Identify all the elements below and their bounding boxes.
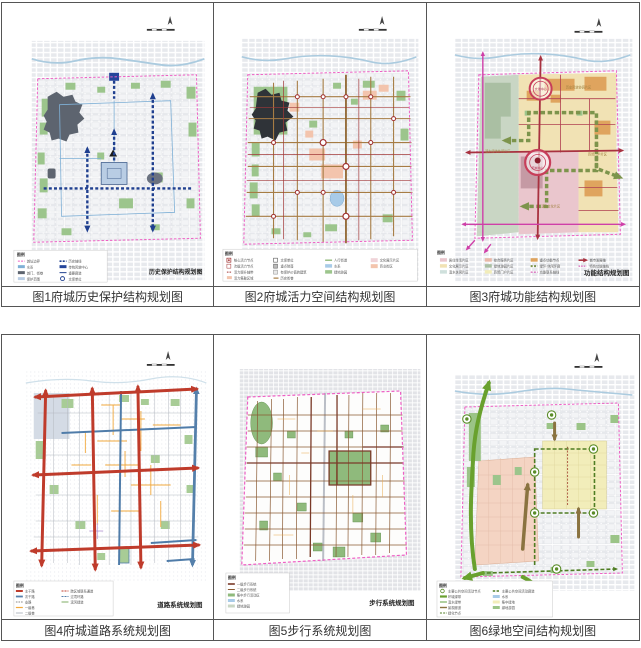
svg-text:主要公共空间活动廊道: 主要公共空间活动廊道 <box>501 588 534 593</box>
caption-figure-3: 图3府城功能结构规划图 <box>427 286 639 306</box>
svg-text:文化展示片区: 文化展示片区 <box>449 264 469 269</box>
svg-text:水系: 水系 <box>334 264 341 269</box>
panel-historic-protection: 图例 城址边界 水系 城门、街巷 保护范围 历史轴线 传统风貌中心 重要廊道 文… <box>2 3 214 306</box>
legend-title: 图例 <box>437 250 445 255</box>
legend-title: 图例 <box>225 251 233 256</box>
svg-text:二级步行系统: 二级步行系统 <box>237 587 257 592</box>
scale-bar <box>574 31 602 33</box>
svg-text:传统风貌中心: 传统风貌中心 <box>68 265 88 270</box>
svg-text:主干路: 主干路 <box>25 588 35 593</box>
legend: 图例 一级步行系统 二级步行系统 集中步行活动区 水系 绿地游园 <box>226 573 289 613</box>
protected-core-block <box>101 162 127 184</box>
svg-text:水系: 水系 <box>237 598 244 603</box>
svg-text:历史风貌协调片区: 历史风貌协调片区 <box>565 85 591 90</box>
map-pedestrian-figure: 图例 一级步行系统 二级步行系统 集中步行活动区 水系 绿地游园 步行系统规划图 <box>214 335 425 619</box>
panel-functional-structure: 文化中心 府城中心 历史风貌协调片区 商贸门户片区 滨水文化片区 滨水绿地休闲片… <box>427 3 639 306</box>
svg-text:集中步行活动区: 集中步行活动区 <box>237 592 261 597</box>
map-road-figure: 图例 主干路 次干路 支路 一级巷 二级巷 跨区域联系通道 过境环路 滨河绿道 … <box>2 335 213 619</box>
north-arrow-icon <box>166 351 171 360</box>
svg-text:特色功能轴线: 特色功能轴线 <box>589 264 609 269</box>
scale-bar <box>574 366 602 368</box>
scale-bar <box>147 29 175 31</box>
svg-text:文化展示片区: 文化展示片区 <box>380 258 400 263</box>
svg-text:环城绿带: 环城绿带 <box>448 594 462 599</box>
north-arrow-icon <box>380 16 385 25</box>
caption-figure-2: 图2府城活力空间结构规划图 <box>214 286 425 306</box>
map-function-figure: 文化中心 府城中心 历史风貌协调片区 商贸门户片区 滨水文化片区 滨水绿地休闲片… <box>427 3 639 286</box>
svg-text:商贸门户片区: 商贸门户片区 <box>493 270 513 275</box>
map-vitality-figure: 图例 核心活力节点 次级活力节点 活力提升轴带 活力集聚区域 文保单位 重点院落… <box>214 3 425 286</box>
legend-title: 图例 <box>228 575 236 580</box>
svg-text:文化中心: 文化中心 <box>534 86 546 91</box>
svg-text:滨水绿地休闲片区: 滨水绿地休闲片区 <box>485 149 511 154</box>
svg-text:活力提升轴带: 活力提升轴带 <box>234 270 254 275</box>
svg-text:水系: 水系 <box>27 265 34 270</box>
svg-text:一级步行系统: 一级步行系统 <box>237 581 257 586</box>
figure-grid-row-1: 图例 城址边界 水系 城门、街巷 保护范围 历史轴线 传统风貌中心 重要廊道 文… <box>1 2 640 307</box>
svg-text:一级巷: 一级巷 <box>25 605 35 610</box>
svg-text:商业街区: 商业街区 <box>380 264 394 269</box>
svg-text:历史街巷: 历史街巷 <box>281 276 295 281</box>
svg-text:有保护价值的建筑: 有保护价值的建筑 <box>281 270 308 275</box>
svg-text:水系: 水系 <box>501 594 508 599</box>
svg-text:二级巷: 二级巷 <box>25 610 35 615</box>
svg-text:历史轴线: 历史轴线 <box>68 259 82 264</box>
svg-text:滨水文化片区: 滨水文化片区 <box>541 203 561 208</box>
svg-text:城址边界: 城址边界 <box>27 259 41 264</box>
svg-text:活力集聚区域: 活力集聚区域 <box>234 276 254 281</box>
panel-green-space-structure: 图例 主要公共空间活动节点 环城绿带 滨水绿带 景观廊道 绿化节点 主要公共空间… <box>427 335 639 640</box>
svg-text:滨水绿带: 滨水绿带 <box>448 599 462 604</box>
map-title-label: 道路系统规划图 <box>157 600 203 609</box>
caption-figure-1: 图1府城历史保护结构规划图 <box>2 286 213 306</box>
svg-text:重点功能节点: 重点功能节点 <box>539 258 559 263</box>
svg-text:集中绿地: 集中绿地 <box>501 599 515 604</box>
svg-text:滨河绿道: 滨河绿道 <box>70 599 84 604</box>
legend: 图例 核心活力节点 次级活力节点 活力提升轴带 活力集聚区域 文保单位 重点院落… <box>223 249 417 281</box>
svg-text:城门、街巷: 城门、街巷 <box>27 271 44 276</box>
panel-road-system: 图例 主干路 次干路 支路 一级巷 二级巷 跨区域联系通道 过境环路 滨河绿道 … <box>2 335 214 640</box>
caption-figure-4: 图4府城道路系统规划图 <box>2 619 213 640</box>
svg-text:景观廊道: 景观廊道 <box>448 605 462 610</box>
svg-text:绿环·休闲环廊: 绿环·休闲环廊 <box>539 264 560 269</box>
svg-text:综合服务片区: 综合服务片区 <box>493 258 513 263</box>
svg-text:功能联系轴线: 功能联系轴线 <box>539 270 559 275</box>
svg-text:绿地游园: 绿地游园 <box>237 603 250 608</box>
svg-text:过境环路: 过境环路 <box>70 594 84 599</box>
svg-text:核心活力节点: 核心活力节点 <box>234 258 254 263</box>
svg-text:滨水休闲片区: 滨水休闲片区 <box>449 270 469 275</box>
svg-text:绿地游园片区: 绿地游园片区 <box>493 264 513 269</box>
legend: 图例 城址边界 水系 城门、街巷 保护范围 历史轴线 传统风貌中心 重要廊道 文… <box>14 250 107 282</box>
caption-figure-6: 图6绿地空间结构规划图 <box>427 619 639 640</box>
svg-text:府城中心: 府城中心 <box>531 165 543 170</box>
legend-title: 图例 <box>16 583 24 588</box>
svg-text:保护范围: 保护范围 <box>27 277 40 282</box>
map-greenspace-figure: 图例 主要公共空间活动节点 环城绿带 滨水绿带 景观廊道 绿化节点 主要公共空间… <box>427 335 639 619</box>
svg-text:跨区域联系通道: 跨区域联系通道 <box>70 588 94 593</box>
svg-text:文保单位: 文保单位 <box>68 277 82 282</box>
north-arrow-icon <box>594 353 599 362</box>
svg-text:次干路: 次干路 <box>25 594 35 599</box>
svg-text:商贸门户片区: 商贸门户片区 <box>588 152 608 157</box>
legend-title: 图例 <box>439 582 447 588</box>
panel-vitality-space: 图例 核心活力节点 次级活力节点 活力提升轴带 活力集聚区域 文保单位 重点院落… <box>214 3 426 306</box>
svg-text:绿化节点: 绿化节点 <box>448 610 462 615</box>
legend: 图例 主要公共空间活动节点 环城绿带 滨水绿带 景观廊道 绿化节点 主要公共空间… <box>437 581 553 617</box>
svg-text:重要廊道: 重要廊道 <box>68 271 82 276</box>
map-title-label: 功能结构规划图 <box>584 268 630 277</box>
svg-text:人行街道: 人行街道 <box>334 258 348 263</box>
svg-text:次级活力节点: 次级活力节点 <box>234 264 254 269</box>
figure-grid-row-2: 图例 主干路 次干路 支路 一级巷 二级巷 跨区域联系通道 过境环路 滨河绿道 … <box>1 334 640 641</box>
caption-figure-5: 图5步行系统规划图 <box>214 619 425 640</box>
svg-text:重点院落: 重点院落 <box>281 264 295 269</box>
svg-text:文保单位: 文保单位 <box>281 258 295 263</box>
svg-text:居住生活片区: 居住生活片区 <box>449 258 469 263</box>
map-historic-protection-figure: 图例 城址边界 水系 城门、街巷 保护范围 历史轴线 传统风貌中心 重要廊道 文… <box>2 3 213 286</box>
svg-text:绿地游园: 绿地游园 <box>501 605 515 610</box>
north-arrow-icon <box>168 16 173 25</box>
legend: 图例 主干路 次干路 支路 一级巷 二级巷 跨区域联系通道 过境环路 滨河绿道 <box>14 581 113 616</box>
scale-bar <box>359 29 387 31</box>
svg-text:绿地游园: 绿地游园 <box>334 270 347 275</box>
svg-text:城市发展轴: 城市发展轴 <box>589 258 606 263</box>
svg-text:支路: 支路 <box>25 599 32 604</box>
north-arrow-icon <box>596 18 601 27</box>
map-title-label: 历史保护结构规划图 <box>149 268 202 276</box>
svg-text:主要公共空间活动节点: 主要公共空间活动节点 <box>448 588 481 593</box>
legend-title: 图例 <box>17 252 25 257</box>
scale-bar <box>147 364 175 366</box>
map-title-label: 步行系统规划图 <box>370 598 416 607</box>
panel-pedestrian-system: 图例 一级步行系统 二级步行系统 集中步行活动区 水系 绿地游园 步行系统规划图… <box>214 335 426 640</box>
